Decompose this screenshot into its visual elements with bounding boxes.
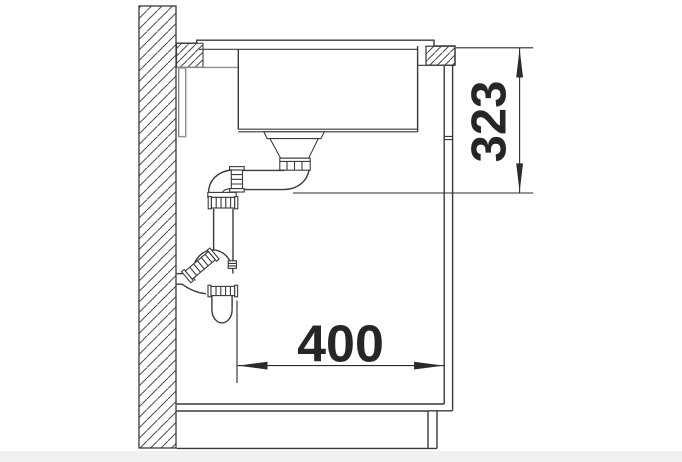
trap-angled-union <box>182 248 220 283</box>
arrow-down-icon <box>516 163 523 192</box>
dimension-vertical-323: 323 <box>293 48 533 193</box>
drain-elbow <box>208 167 244 262</box>
drain-pipe <box>242 170 309 189</box>
plinth <box>428 411 437 449</box>
arrow-right-icon <box>414 362 444 370</box>
worktop-right-cut <box>426 46 455 65</box>
worktop <box>176 40 455 67</box>
dim-323-label: 323 <box>463 81 517 163</box>
drawing-canvas: 323 400 <box>0 0 682 462</box>
drain-strainer <box>264 132 325 170</box>
front-panel-seam <box>444 136 452 139</box>
wall-section <box>139 6 176 448</box>
trap <box>177 248 238 323</box>
worktop-left-cut <box>177 43 203 67</box>
cabinet <box>177 65 453 448</box>
arrow-up-icon <box>516 49 523 78</box>
floor-strip <box>0 451 682 462</box>
sink-installation-drawing: 323 400 <box>0 0 682 462</box>
dim-400-label: 400 <box>297 316 384 374</box>
arrow-left-icon <box>238 362 268 370</box>
cabinet-back-batten <box>179 68 186 137</box>
dimension-horizontal-400: 400 <box>237 301 444 384</box>
sink-bowl <box>238 46 417 132</box>
